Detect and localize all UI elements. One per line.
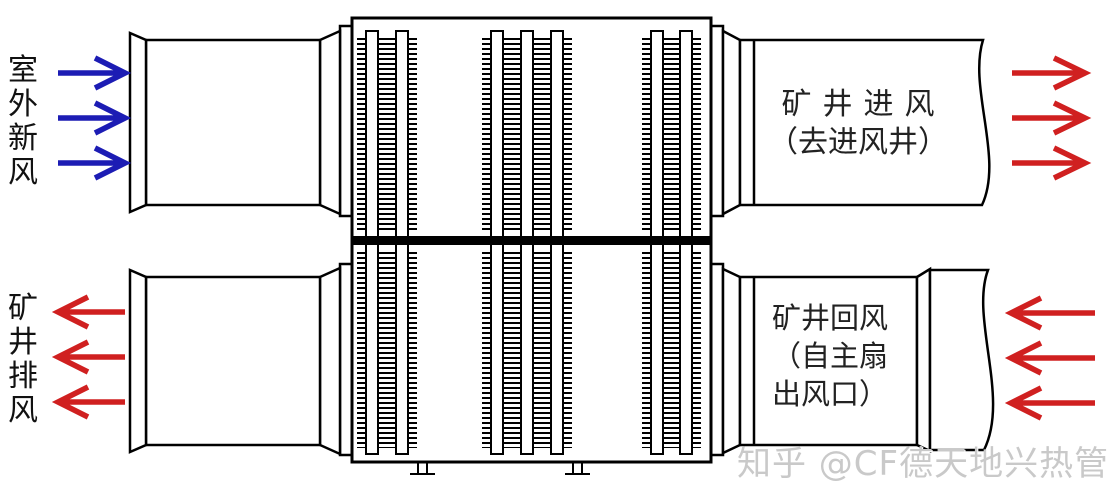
label-mine-intake-air: 矿井进风 （去进风井）	[742, 86, 974, 162]
label-mine-exhaust-air: 矿井排风	[6, 292, 40, 428]
tube-fins	[534, 38, 542, 232]
tube-fins	[504, 252, 512, 448]
tube-fins	[387, 252, 395, 448]
label-mine-return-air: 矿井回风 （自主扇 出风口）	[740, 299, 920, 413]
intake-line1: 矿井进风	[742, 86, 974, 124]
tube-fins	[482, 252, 490, 448]
label-outdoor-fresh-air: 室外新风	[6, 54, 40, 190]
heat-pipe-tube-bank	[0, 0, 1112, 497]
tube-fins	[534, 252, 542, 448]
return-line3: 出风口）	[740, 375, 920, 413]
tube-fins	[642, 252, 650, 448]
zhihu-watermark: 知乎 @CF德天地兴热管	[737, 436, 1112, 485]
tube-fins	[387, 38, 395, 232]
intake-line2: （去进风井）	[742, 124, 974, 162]
tube-fins	[693, 252, 701, 448]
tube-fins	[512, 252, 520, 448]
partition-plate	[352, 236, 711, 245]
tube-fins	[357, 38, 365, 232]
tube-fins	[564, 252, 572, 448]
tube-fins	[642, 38, 650, 232]
tube-fins	[379, 38, 387, 232]
tube-fins	[409, 38, 417, 232]
tube-fins	[564, 38, 572, 232]
tube-fins	[409, 252, 417, 448]
tube-fins	[504, 38, 512, 232]
tube-fins	[671, 38, 679, 232]
tube-fins	[357, 252, 365, 448]
return-line1: 矿井回风	[740, 299, 920, 337]
tube-fins	[671, 252, 679, 448]
tube-fins	[512, 38, 520, 232]
tube-fins	[379, 252, 387, 448]
tube-fins	[542, 252, 550, 448]
tube-fins	[542, 38, 550, 232]
mine-ventilation-heat-exchanger-diagram: 室外新风 矿井排风 矿井进风 （去进风井） 矿井回风 （自主扇 出风口） 知乎 …	[0, 0, 1112, 497]
tube-fins	[482, 38, 490, 232]
tube-fins	[693, 38, 701, 232]
return-line2: （自主扇	[740, 337, 920, 375]
